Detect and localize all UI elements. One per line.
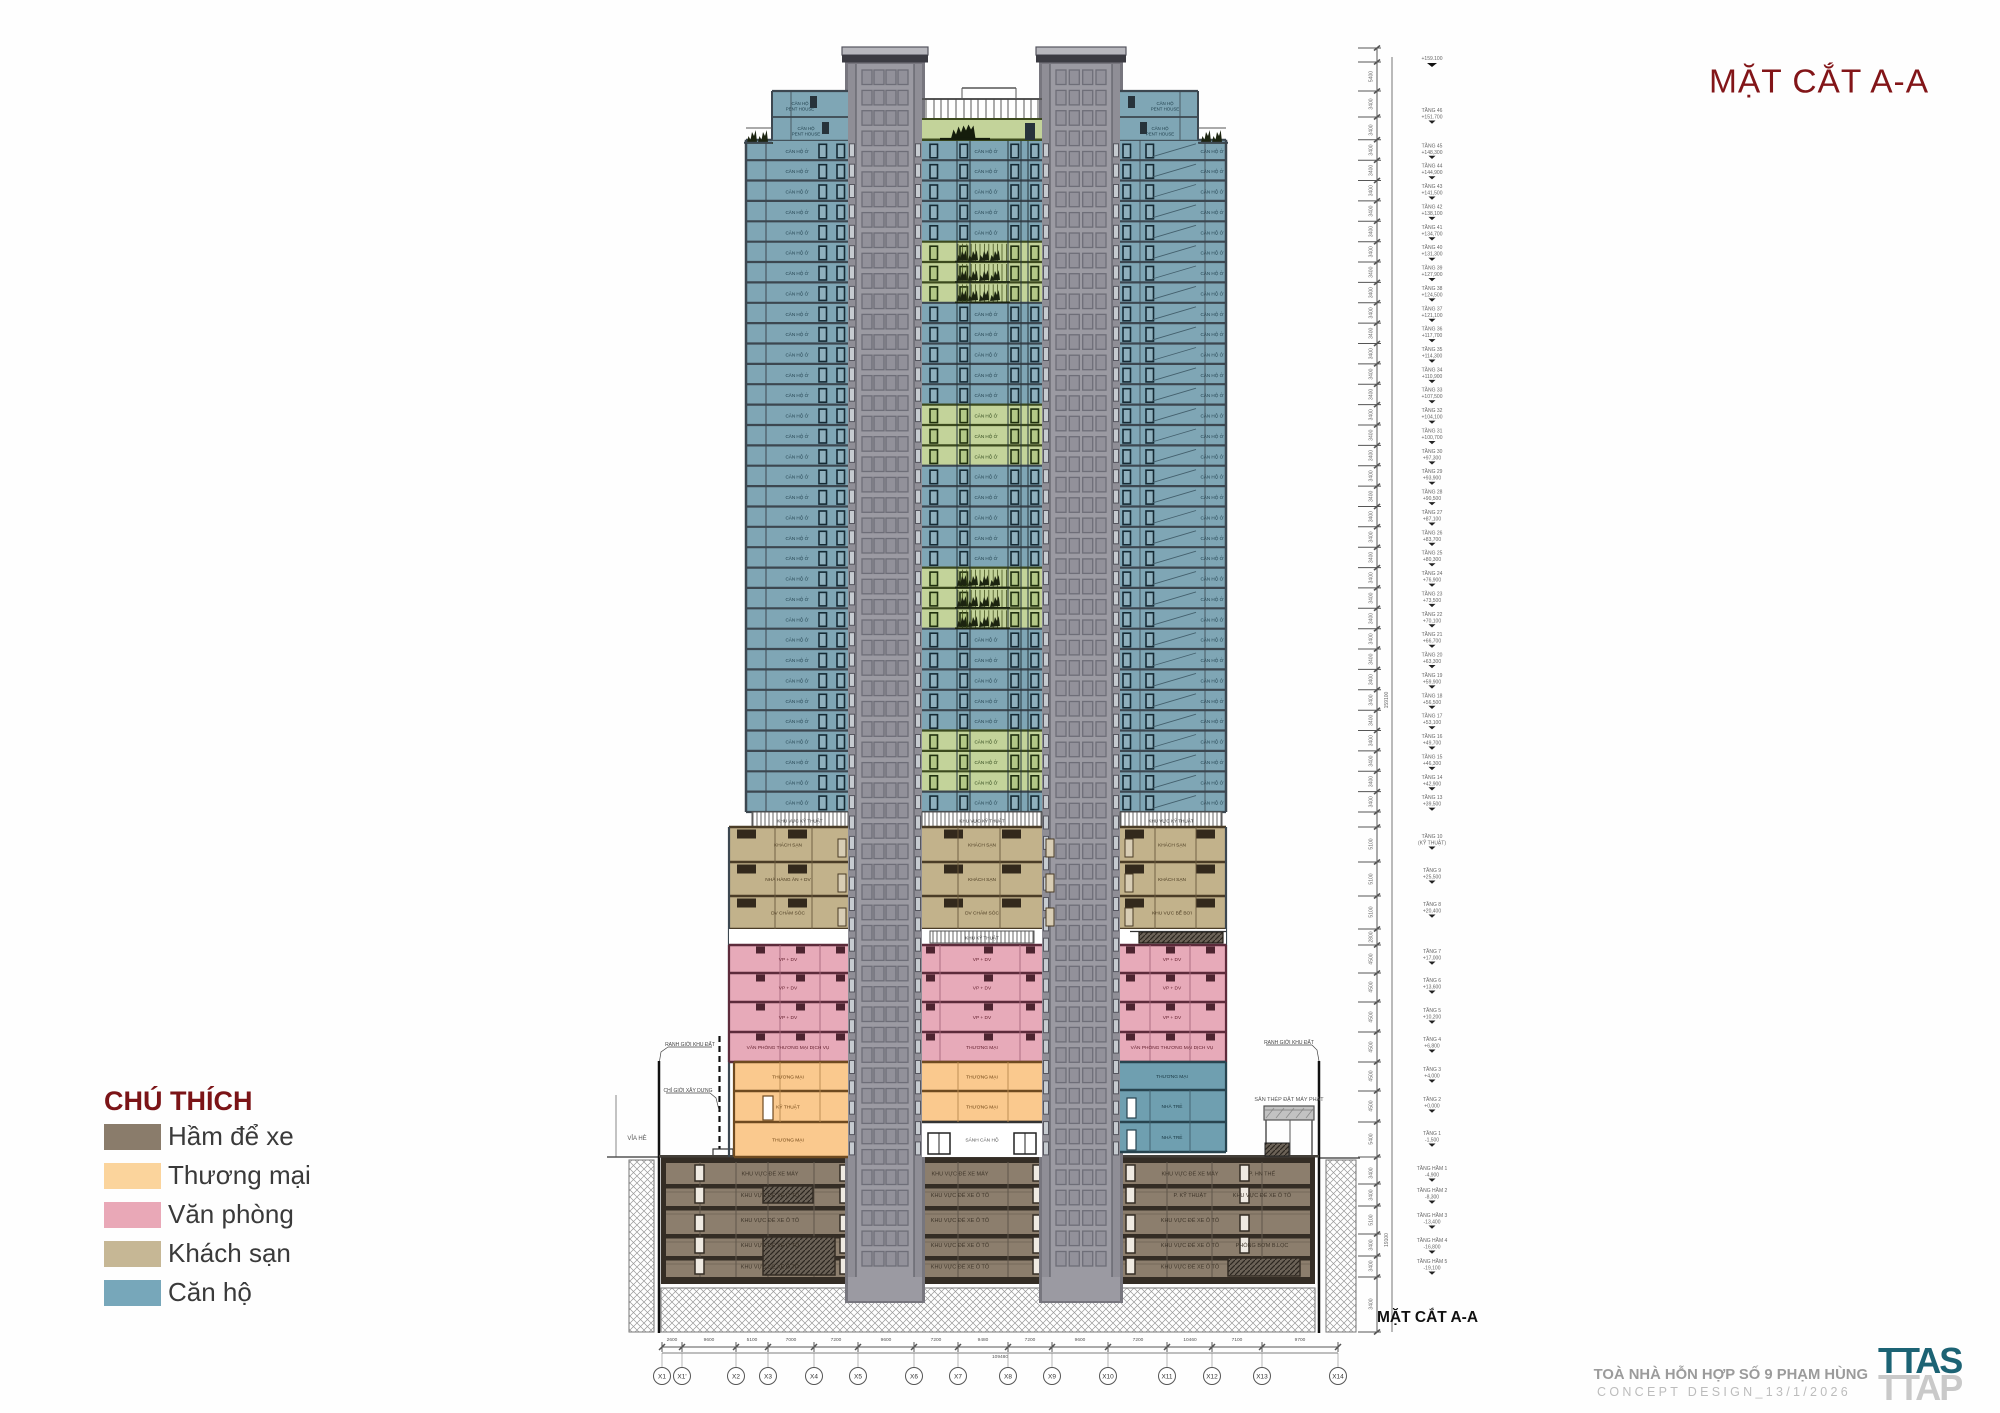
svg-text:TẦNG 32: TẦNG 32 <box>1422 407 1443 414</box>
svg-text:5100: 5100 <box>1369 873 1375 884</box>
svg-text:CĂN HỘ Ở: CĂN HỘ Ở <box>1200 718 1223 724</box>
svg-text:CĂN HỘ Ở: CĂN HỘ Ở <box>785 148 808 154</box>
svg-text:TOÀ NHÀ HỖN HỢP SỐ 9 PHẠM HÙNG: TOÀ NHÀ HỖN HỢP SỐ 9 PHẠM HÙNG <box>1594 1365 1868 1383</box>
svg-text:3400: 3400 <box>1369 470 1375 481</box>
svg-text:CĂN HỘ Ở: CĂN HỘ Ở <box>1200 739 1223 745</box>
svg-text:CĂN HỘ Ở: CĂN HỘ Ở <box>785 759 808 765</box>
svg-text:CĂN HỘ Ở: CĂN HỘ Ở <box>974 494 997 500</box>
svg-text:+56,500: +56,500 <box>1423 700 1441 706</box>
svg-text:CĂN HỘ Ở: CĂN HỘ Ở <box>974 535 997 541</box>
svg-text:CĂN HỘ Ở: CĂN HỘ Ở <box>785 596 808 602</box>
svg-text:9600: 9600 <box>704 1337 715 1343</box>
svg-text:7200: 7200 <box>1025 1337 1036 1343</box>
svg-text:3400: 3400 <box>1369 755 1375 766</box>
svg-text:+42,900: +42,900 <box>1423 781 1441 787</box>
svg-text:+17,000: +17,000 <box>1423 956 1441 962</box>
svg-text:Văn phòng: Văn phòng <box>168 1199 294 1229</box>
svg-text:TẦNG 1: TẦNG 1 <box>1423 1130 1441 1137</box>
svg-text:DV CHĂM SÓC: DV CHĂM SÓC <box>965 910 999 917</box>
svg-text:CĂN HỘ Ở: CĂN HỘ Ở <box>1200 555 1223 561</box>
svg-text:MẶT CẮT A-A: MẶT CẮT A-A <box>1377 1308 1478 1326</box>
svg-text:CĂN HỘ Ở: CĂN HỘ Ở <box>974 637 997 643</box>
svg-text:CĂN HỘ Ở: CĂN HỘ Ở <box>1200 270 1223 276</box>
svg-text:3400: 3400 <box>1369 735 1375 746</box>
svg-text:3400: 3400 <box>1369 246 1375 257</box>
svg-text:CĂN HỘ Ở: CĂN HỘ Ở <box>785 352 808 358</box>
svg-text:+141,500: +141,500 <box>1422 191 1443 197</box>
svg-text:KHU VỰC ĐỂ XE Ô TÔ: KHU VỰC ĐỂ XE Ô TÔ <box>1161 1264 1220 1271</box>
svg-text:X9: X9 <box>1048 1374 1056 1381</box>
svg-text:TẦNG 45: TẦNG 45 <box>1422 142 1443 149</box>
svg-text:CĂN HỘ Ở: CĂN HỘ Ở <box>974 433 997 439</box>
svg-text:TẦNG 25: TẦNG 25 <box>1422 550 1443 557</box>
svg-text:+25,500: +25,500 <box>1423 875 1441 881</box>
svg-text:7200: 7200 <box>1133 1337 1144 1343</box>
svg-text:+4,000: +4,000 <box>1424 1074 1440 1080</box>
svg-text:CĂN HỘ Ở: CĂN HỘ Ở <box>974 148 997 154</box>
svg-text:TẦNG 35: TẦNG 35 <box>1422 346 1443 353</box>
svg-text:TẦNG 28: TẦNG 28 <box>1422 489 1443 496</box>
svg-text:CĂN HỘ Ở: CĂN HỘ Ở <box>785 168 808 174</box>
svg-text:5100: 5100 <box>1369 838 1375 849</box>
svg-text:+63,300: +63,300 <box>1423 659 1441 665</box>
svg-text:5100: 5100 <box>747 1337 758 1343</box>
svg-text:9700: 9700 <box>1295 1337 1306 1343</box>
svg-text:VỈA HÈ: VỈA HÈ <box>627 1135 646 1142</box>
svg-text:CĂN HỘ Ở: CĂN HỘ Ở <box>1200 474 1223 480</box>
svg-text:TẦNG HẦM 2: TẦNG HẦM 2 <box>1417 1187 1448 1194</box>
svg-text:VP + DV: VP + DV <box>973 1015 992 1021</box>
svg-text:10460: 10460 <box>1183 1337 1197 1343</box>
svg-text:THƯƠNG MẠI: THƯƠNG MẠI <box>1156 1074 1188 1080</box>
svg-text:2800: 2800 <box>1369 931 1375 942</box>
svg-text:+46,300: +46,300 <box>1423 761 1441 767</box>
svg-text:TẦNG 20: TẦNG 20 <box>1422 652 1443 659</box>
svg-text:CĂN HỘ Ở: CĂN HỘ Ở <box>974 800 997 806</box>
svg-text:3400: 3400 <box>1369 368 1375 379</box>
svg-text:TẦNG 42: TẦNG 42 <box>1422 203 1443 210</box>
svg-text:+73,500: +73,500 <box>1423 598 1441 604</box>
svg-text:NHÀ TRẺ: NHÀ TRẺ <box>1162 1103 1183 1110</box>
svg-text:3400: 3400 <box>1369 266 1375 277</box>
svg-text:TẦNG 10: TẦNG 10 <box>1422 833 1443 840</box>
svg-text:+87,100: +87,100 <box>1423 517 1441 523</box>
svg-text:CĂN HỘ Ở: CĂN HỘ Ở <box>1200 596 1223 602</box>
svg-text:CĂN HỘ Ở: CĂN HỘ Ở <box>785 189 808 195</box>
svg-text:TẦNG 6: TẦNG 6 <box>1423 977 1441 984</box>
svg-text:X7: X7 <box>954 1374 962 1381</box>
svg-text:CĂN HỘ Ở: CĂN HỘ Ở <box>974 352 997 358</box>
svg-text:KHU VỰC ĐỂ XE Ô TÔ: KHU VỰC ĐỂ XE Ô TÔ <box>931 1192 990 1199</box>
svg-text:CĂN HỘ Ở: CĂN HỘ Ở <box>974 392 997 398</box>
svg-text:3400: 3400 <box>1369 409 1375 420</box>
svg-text:CĂN HỘ Ở: CĂN HỘ Ở <box>1200 311 1223 317</box>
svg-text:KHÁCH SẠN: KHÁCH SẠN <box>968 876 997 883</box>
svg-text:MẶT CẮT A-A: MẶT CẮT A-A <box>1709 63 1929 101</box>
svg-text:CĂN HỘ Ở: CĂN HỘ Ở <box>974 779 997 785</box>
svg-text:CĂN HỘ Ở: CĂN HỘ Ở <box>1200 800 1223 806</box>
svg-text:VP + DV: VP + DV <box>779 986 798 992</box>
svg-text:3400: 3400 <box>1369 307 1375 318</box>
svg-text:TẦNG 13: TẦNG 13 <box>1422 794 1443 801</box>
svg-text:TẦNG 43: TẦNG 43 <box>1422 183 1443 190</box>
svg-text:VP + DV: VP + DV <box>973 957 992 963</box>
svg-text:CĂN HỘ Ở: CĂN HỘ Ở <box>1200 535 1223 541</box>
svg-text:+159.100: +159.100 <box>1422 56 1443 62</box>
svg-text:3400: 3400 <box>1369 613 1375 624</box>
svg-text:3400: 3400 <box>1369 348 1375 359</box>
svg-text:VĂN PHÒNG THƯƠNG MẠI DỊCH VỤ: VĂN PHÒNG THƯƠNG MẠI DỊCH VỤ <box>1131 1044 1214 1051</box>
svg-text:KHU VỰC ĐỂ XE Ô TÔ: KHU VỰC ĐỂ XE Ô TÔ <box>741 1217 800 1224</box>
svg-text:3400: 3400 <box>1369 531 1375 542</box>
svg-text:TẦNG 39: TẦNG 39 <box>1422 265 1443 272</box>
svg-text:3400: 3400 <box>1369 185 1375 196</box>
svg-text:-16,800: -16,800 <box>1424 1245 1441 1251</box>
svg-text:PENT HOUSE: PENT HOUSE <box>1151 107 1180 112</box>
svg-text:3400: 3400 <box>1369 144 1375 155</box>
svg-text:X14: X14 <box>1332 1374 1344 1381</box>
svg-text:CĂN HỘ Ở: CĂN HỘ Ở <box>785 677 808 683</box>
svg-text:CĂN HỘ Ở: CĂN HỘ Ở <box>785 250 808 256</box>
svg-text:CĂN HỘ Ở: CĂN HỘ Ở <box>974 555 997 561</box>
svg-text:3400: 3400 <box>1369 429 1375 440</box>
svg-text:3400: 3400 <box>1369 328 1375 339</box>
svg-text:+148,300: +148,300 <box>1422 150 1443 156</box>
svg-text:Khách sạn: Khách sạn <box>168 1238 291 1268</box>
svg-text:TẦNG 38: TẦNG 38 <box>1422 285 1443 292</box>
svg-text:KHU VỰC ĐỂ XE Ô TÔ: KHU VỰC ĐỂ XE Ô TÔ <box>1161 1242 1220 1249</box>
svg-text:CĂN HỘ Ở: CĂN HỘ Ở <box>785 311 808 317</box>
svg-text:CĂN HỘ: CĂN HỘ <box>791 101 809 106</box>
svg-text:CĂN HỘ Ở: CĂN HỘ Ở <box>1200 209 1223 215</box>
svg-text:TẦNG 23: TẦNG 23 <box>1422 590 1443 597</box>
svg-text:+138,100: +138,100 <box>1422 211 1443 217</box>
svg-text:+90,500: +90,500 <box>1423 496 1441 502</box>
svg-text:CĂN HỘ Ở: CĂN HỘ Ở <box>785 800 808 806</box>
svg-text:THƯƠNG MẠI: THƯƠNG MẠI <box>966 1045 998 1051</box>
svg-text:PENT HOUSE: PENT HOUSE <box>786 107 815 112</box>
svg-text:CĂN HỘ Ở: CĂN HỘ Ở <box>785 616 808 622</box>
svg-text:VP + DV: VP + DV <box>1163 1015 1182 1021</box>
svg-text:CĂN HỘ Ở: CĂN HỘ Ở <box>785 209 808 215</box>
svg-text:TẦNG 21: TẦNG 21 <box>1422 631 1443 638</box>
svg-text:7000: 7000 <box>786 1337 797 1343</box>
svg-text:CĂN HỘ Ở: CĂN HỘ Ở <box>1200 413 1223 419</box>
svg-text:CĂN HỘ Ở: CĂN HỘ Ở <box>1200 392 1223 398</box>
svg-text:CĂN HỘ Ở: CĂN HỘ Ở <box>1200 453 1223 459</box>
svg-text:TẦNG 15: TẦNG 15 <box>1422 753 1443 760</box>
svg-text:+117,700: +117,700 <box>1422 333 1443 339</box>
svg-text:KHU VỰC BỂ BƠI: KHU VỰC BỂ BƠI <box>1152 910 1192 917</box>
svg-text:TẦNG 22: TẦNG 22 <box>1422 611 1443 618</box>
svg-text:9600: 9600 <box>1075 1337 1086 1343</box>
svg-text:CĂN HỘ Ở: CĂN HỘ Ở <box>974 453 997 459</box>
svg-text:TẦNG 3: TẦNG 3 <box>1423 1066 1441 1073</box>
svg-text:4500: 4500 <box>1369 1100 1375 1111</box>
svg-text:CĂN HỘ Ở: CĂN HỘ Ở <box>785 779 808 785</box>
svg-text:3400: 3400 <box>1369 653 1375 664</box>
svg-text:CĂN HỘ Ở: CĂN HỘ Ở <box>1200 250 1223 256</box>
svg-text:(KỸ THUẬT): (KỸ THUẬT) <box>1418 840 1446 847</box>
svg-text:KHU VỰC ĐỂ XE MÁY: KHU VỰC ĐỂ XE MÁY <box>1162 1171 1219 1178</box>
svg-text:+39,500: +39,500 <box>1423 802 1441 808</box>
svg-text:TẦNG 14: TẦNG 14 <box>1422 774 1443 781</box>
svg-text:CĂN HỘ Ở: CĂN HỘ Ở <box>1200 637 1223 643</box>
svg-text:3400: 3400 <box>1369 592 1375 603</box>
svg-text:KHU VỰC ĐỂ XE Ô TÔ: KHU VỰC ĐỂ XE Ô TÔ <box>931 1242 990 1249</box>
svg-text:TẦNG 17: TẦNG 17 <box>1422 713 1443 720</box>
svg-text:109480: 109480 <box>992 1354 1008 1360</box>
svg-text:+134,700: +134,700 <box>1422 231 1443 237</box>
svg-text:+114,300: +114,300 <box>1422 354 1443 360</box>
svg-text:Thương mại: Thương mại <box>168 1160 311 1190</box>
svg-text:KHÁCH SẠN: KHÁCH SẠN <box>774 842 803 849</box>
svg-text:3400: 3400 <box>1369 572 1375 583</box>
svg-text:X5: X5 <box>854 1374 862 1381</box>
svg-text:3400: 3400 <box>1369 491 1375 502</box>
svg-text:CĂN HỘ Ở: CĂN HỘ Ở <box>1200 616 1223 622</box>
svg-text:CĂN HỘ Ở: CĂN HỘ Ở <box>1200 494 1223 500</box>
svg-text:KHU VỰC ĐỂ XE Ô TÔ: KHU VỰC ĐỂ XE Ô TÔ <box>931 1217 990 1224</box>
svg-text:+59,900: +59,900 <box>1423 679 1441 685</box>
svg-text:TẦNG 24: TẦNG 24 <box>1422 570 1443 577</box>
svg-text:5400: 5400 <box>1369 1133 1375 1144</box>
svg-text:CĂN HỘ Ở: CĂN HỘ Ở <box>1200 352 1223 358</box>
svg-text:PENT HOUSE: PENT HOUSE <box>792 132 821 137</box>
svg-text:3400: 3400 <box>1369 1260 1375 1271</box>
svg-text:159100: 159100 <box>1384 691 1390 708</box>
svg-text:CĂN HỘ Ở: CĂN HỘ Ở <box>785 413 808 419</box>
svg-text:-1,500: -1,500 <box>1425 1138 1439 1144</box>
svg-text:3400: 3400 <box>1369 1189 1375 1200</box>
svg-text:TẦNG 7: TẦNG 7 <box>1423 948 1441 955</box>
svg-text:3400: 3400 <box>1369 1298 1375 1309</box>
svg-text:TẦNG HẦM 1: TẦNG HẦM 1 <box>1417 1165 1448 1172</box>
svg-text:CĂN HỘ Ở: CĂN HỘ Ở <box>1200 576 1223 582</box>
svg-text:7200: 7200 <box>931 1337 942 1343</box>
svg-text:CĂN HỘ Ở: CĂN HỘ Ở <box>974 331 997 337</box>
svg-text:KHU VỰC ĐỂ XE Ô TÔ: KHU VỰC ĐỂ XE Ô TÔ <box>741 1242 800 1249</box>
svg-text:+6,800: +6,800 <box>1424 1044 1440 1050</box>
svg-text:+121,100: +121,100 <box>1422 313 1443 319</box>
svg-text:CĂN HỘ Ở: CĂN HỘ Ở <box>974 209 997 215</box>
svg-text:TẦNG 27: TẦNG 27 <box>1422 509 1443 516</box>
svg-text:3400: 3400 <box>1369 715 1375 726</box>
svg-text:+66,700: +66,700 <box>1423 639 1441 645</box>
svg-text:KHU VỰC ĐỂ XE MÁY: KHU VỰC ĐỂ XE MÁY <box>932 1171 989 1178</box>
svg-text:SẢNH CĂN HỘ: SẢNH CĂN HỘ <box>965 1137 999 1144</box>
svg-text:KHU VỰC KỸ THUẬT: KHU VỰC KỸ THUẬT <box>959 818 1004 824</box>
svg-text:CĂN HỘ Ở: CĂN HỘ Ở <box>974 698 997 704</box>
svg-text:3400: 3400 <box>1369 674 1375 685</box>
svg-text:KHU KỸ THUẬT: KHU KỸ THUẬT <box>965 935 999 941</box>
svg-text:CĂN HỘ Ở: CĂN HỘ Ở <box>785 698 808 704</box>
svg-text:+76,900: +76,900 <box>1423 578 1441 584</box>
svg-text:CĂN HỘ Ở: CĂN HỘ Ở <box>974 168 997 174</box>
svg-text:CĂN HỘ Ở: CĂN HỘ Ở <box>1200 515 1223 521</box>
svg-text:CĂN HỘ Ở: CĂN HỘ Ở <box>785 739 808 745</box>
svg-text:CĂN HỘ Ở: CĂN HỘ Ở <box>785 290 808 296</box>
svg-text:+97,300: +97,300 <box>1423 455 1441 461</box>
svg-text:THƯƠNG MẠI: THƯƠNG MẠI <box>966 1105 998 1111</box>
svg-text:CĂN HỘ Ở: CĂN HỘ Ở <box>785 229 808 235</box>
svg-text:3400: 3400 <box>1369 124 1375 135</box>
svg-text:CĂN HỘ Ở: CĂN HỘ Ở <box>974 739 997 745</box>
svg-text:NHÀ HÀNG ĂN + DV: NHÀ HÀNG ĂN + DV <box>765 876 811 883</box>
svg-text:X1': X1' <box>677 1374 686 1381</box>
svg-text:SÂN THÉP ĐẶT MÁY PHÁT: SÂN THÉP ĐẶT MÁY PHÁT <box>1254 1096 1324 1103</box>
svg-text:5100: 5100 <box>1369 1214 1375 1225</box>
svg-text:CĂN HỘ: CĂN HỘ <box>1156 101 1174 106</box>
svg-text:TẦNG 18: TẦNG 18 <box>1422 692 1443 699</box>
svg-text:CĂN HỘ Ở: CĂN HỘ Ở <box>785 657 808 663</box>
svg-text:TẦNG 8: TẦNG 8 <box>1423 901 1441 908</box>
svg-text:TẦNG 33: TẦNG 33 <box>1422 387 1443 394</box>
svg-text:CĂN HỘ Ở: CĂN HỘ Ở <box>974 372 997 378</box>
svg-text:CONCEPT DESIGN_13/1/2026: CONCEPT DESIGN_13/1/2026 <box>1597 1385 1851 1399</box>
svg-text:X11: X11 <box>1161 1374 1172 1381</box>
svg-text:3400: 3400 <box>1369 450 1375 461</box>
svg-text:+131,300: +131,300 <box>1422 252 1443 258</box>
svg-text:CĂN HỘ Ở: CĂN HỘ Ở <box>785 270 808 276</box>
svg-text:CĂN HỘ Ở: CĂN HỘ Ở <box>974 657 997 663</box>
svg-text:3400: 3400 <box>1369 226 1375 237</box>
svg-text:+93,900: +93,900 <box>1423 476 1441 482</box>
svg-text:3400: 3400 <box>1369 389 1375 400</box>
svg-text:3400: 3400 <box>1369 796 1375 807</box>
svg-text:CĂN HỘ Ở: CĂN HỘ Ở <box>785 576 808 582</box>
svg-text:TTAP: TTAP <box>1878 1367 1962 1408</box>
svg-text:+0,000: +0,000 <box>1424 1104 1440 1110</box>
svg-text:TẦNG 41: TẦNG 41 <box>1422 224 1443 231</box>
svg-text:DV CHĂM SÓC: DV CHĂM SÓC <box>771 910 805 917</box>
svg-text:KHU VỰC ĐỂ XE Ô TÔ: KHU VỰC ĐỂ XE Ô TÔ <box>1161 1217 1220 1224</box>
svg-text:CĂN HỘ Ở: CĂN HỘ Ở <box>785 433 808 439</box>
svg-text:-13,400: -13,400 <box>1424 1220 1441 1226</box>
svg-text:CĂN HỘ Ở: CĂN HỘ Ở <box>1200 229 1223 235</box>
svg-text:CĂN HỘ Ở: CĂN HỘ Ở <box>785 331 808 337</box>
svg-text:5400: 5400 <box>1369 71 1375 82</box>
svg-text:TẦNG 5: TẦNG 5 <box>1423 1007 1441 1014</box>
svg-text:+124,500: +124,500 <box>1422 292 1443 298</box>
svg-text:X6: X6 <box>910 1374 918 1381</box>
svg-text:KHÁCH SẠN: KHÁCH SẠN <box>1158 876 1187 883</box>
svg-text:+13,600: +13,600 <box>1423 985 1441 991</box>
svg-text:7200: 7200 <box>831 1337 842 1343</box>
svg-text:CĂN HỘ Ở: CĂN HỘ Ở <box>974 474 997 480</box>
svg-text:KHU VỰC ĐỂ XE Ô TÔ: KHU VỰC ĐỂ XE Ô TÔ <box>741 1264 800 1271</box>
svg-text:VP + DV: VP + DV <box>1163 986 1182 992</box>
svg-text:CĂN HỘ Ở: CĂN HỘ Ở <box>785 372 808 378</box>
svg-text:CĂN HỘ Ở: CĂN HỘ Ở <box>974 189 997 195</box>
svg-text:KHU VỰC KỸ THUẬT: KHU VỰC KỸ THUẬT <box>1148 818 1193 824</box>
svg-text:+100,700: +100,700 <box>1422 435 1443 441</box>
svg-text:PHÒNG BƠM B.LỌC: PHÒNG BƠM B.LỌC <box>1236 1242 1289 1249</box>
svg-text:CĂN HỘ Ở: CĂN HỘ Ở <box>974 515 997 521</box>
svg-text:19100: 19100 <box>1384 1233 1390 1247</box>
svg-text:TẦNG 40: TẦNG 40 <box>1422 244 1443 251</box>
svg-text:CĂN HỘ Ở: CĂN HỘ Ở <box>1200 148 1223 154</box>
svg-text:4500: 4500 <box>1369 981 1375 992</box>
svg-text:CĂN HỘ Ở: CĂN HỘ Ở <box>1200 677 1223 683</box>
svg-text:4500: 4500 <box>1369 1070 1375 1081</box>
svg-text:KHÁCH SẠN: KHÁCH SẠN <box>1158 842 1187 849</box>
svg-text:CĂN HỘ Ở: CĂN HỘ Ở <box>1200 759 1223 765</box>
svg-text:7100: 7100 <box>1232 1337 1243 1343</box>
svg-text:TẦNG 2: TẦNG 2 <box>1423 1096 1441 1103</box>
svg-text:PENT HOUSE: PENT HOUSE <box>1146 132 1175 137</box>
svg-text:X4: X4 <box>810 1374 818 1381</box>
svg-text:3400: 3400 <box>1369 633 1375 644</box>
svg-text:CĂN HỘ Ở: CĂN HỘ Ở <box>1200 189 1223 195</box>
svg-text:CĂN HỘ Ở: CĂN HỘ Ở <box>1200 698 1223 704</box>
svg-text:X10: X10 <box>1102 1374 1114 1381</box>
svg-text:CĂN HỘ Ở: CĂN HỘ Ở <box>974 677 997 683</box>
svg-text:+20,400: +20,400 <box>1423 909 1441 915</box>
svg-text:CĂN HỘ Ở: CĂN HỘ Ở <box>1200 372 1223 378</box>
svg-text:2600: 2600 <box>667 1337 678 1343</box>
svg-text:X13: X13 <box>1256 1374 1268 1381</box>
svg-text:CĂN HỘ Ở: CĂN HỘ Ở <box>785 515 808 521</box>
svg-text:5100: 5100 <box>1369 906 1375 917</box>
svg-text:CĂN HỘ Ở: CĂN HỘ Ở <box>974 229 997 235</box>
svg-text:-4,900: -4,900 <box>1425 1173 1439 1179</box>
svg-text:VP + DV: VP + DV <box>1163 957 1182 963</box>
svg-text:CĂN HỘ Ở: CĂN HỘ Ở <box>974 311 997 317</box>
svg-text:TẦNG HẦM 3: TẦNG HẦM 3 <box>1417 1212 1448 1219</box>
svg-text:X3: X3 <box>764 1374 772 1381</box>
svg-text:THƯƠNG MẠI: THƯƠNG MẠI <box>772 1075 804 1081</box>
svg-text:3400: 3400 <box>1369 165 1375 176</box>
svg-text:VĂN PHÒNG THƯƠNG MẠI DỊCH VỤ: VĂN PHÒNG THƯƠNG MẠI DỊCH VỤ <box>747 1044 830 1051</box>
svg-text:+144,900: +144,900 <box>1422 170 1443 176</box>
svg-text:KHÁCH SẠN: KHÁCH SẠN <box>968 842 997 849</box>
svg-text:+83,700: +83,700 <box>1423 537 1441 543</box>
svg-text:3400: 3400 <box>1369 552 1375 563</box>
svg-text:CĂN HỘ Ở: CĂN HỘ Ở <box>1200 168 1223 174</box>
svg-text:9600: 9600 <box>881 1337 892 1343</box>
svg-text:TẦNG 19: TẦNG 19 <box>1422 672 1443 679</box>
svg-text:X2: X2 <box>732 1374 740 1381</box>
svg-text:TẦNG 30: TẦNG 30 <box>1422 448 1443 455</box>
svg-text:+151.700: +151.700 <box>1422 115 1443 121</box>
svg-text:CĂN HỘ Ở: CĂN HỘ Ở <box>974 759 997 765</box>
svg-text:KỸ THUẬT: KỸ THUẬT <box>776 1104 800 1111</box>
svg-text:VP + DV: VP + DV <box>779 957 798 963</box>
svg-text:X12: X12 <box>1206 1374 1218 1381</box>
svg-text:TẦNG 9: TẦNG 9 <box>1423 867 1441 874</box>
svg-text:3400: 3400 <box>1369 287 1375 298</box>
svg-text:-19,100: -19,100 <box>1424 1266 1441 1272</box>
svg-text:CĂN HỘ Ở: CĂN HỘ Ở <box>785 535 808 541</box>
svg-text:TẦNG 29: TẦNG 29 <box>1422 468 1443 475</box>
svg-text:CĂN HỘ Ở: CĂN HỘ Ở <box>1200 433 1223 439</box>
svg-text:+80,300: +80,300 <box>1423 557 1441 563</box>
svg-text:+53,100: +53,100 <box>1423 720 1441 726</box>
svg-text:+104,100: +104,100 <box>1422 415 1443 421</box>
svg-text:CĂN HỘ Ở: CĂN HỘ Ở <box>1200 657 1223 663</box>
svg-text:3400: 3400 <box>1369 776 1375 787</box>
svg-text:+70,100: +70,100 <box>1423 618 1441 624</box>
svg-text:VP + DV: VP + DV <box>779 1015 798 1021</box>
svg-text:CĂN HỘ Ở: CĂN HỘ Ở <box>1200 779 1223 785</box>
svg-text:CĂN HỘ Ở: CĂN HỘ Ở <box>1200 331 1223 337</box>
svg-text:VP + DV: VP + DV <box>973 986 992 992</box>
svg-text:TẦNG 4: TẦNG 4 <box>1423 1036 1441 1043</box>
svg-text:TẦNG 46: TẦNG 46 <box>1422 107 1443 114</box>
svg-text:CĂN HỘ Ở: CĂN HỘ Ở <box>785 718 808 724</box>
svg-text:CĂN HỘ Ở: CĂN HỘ Ở <box>785 392 808 398</box>
